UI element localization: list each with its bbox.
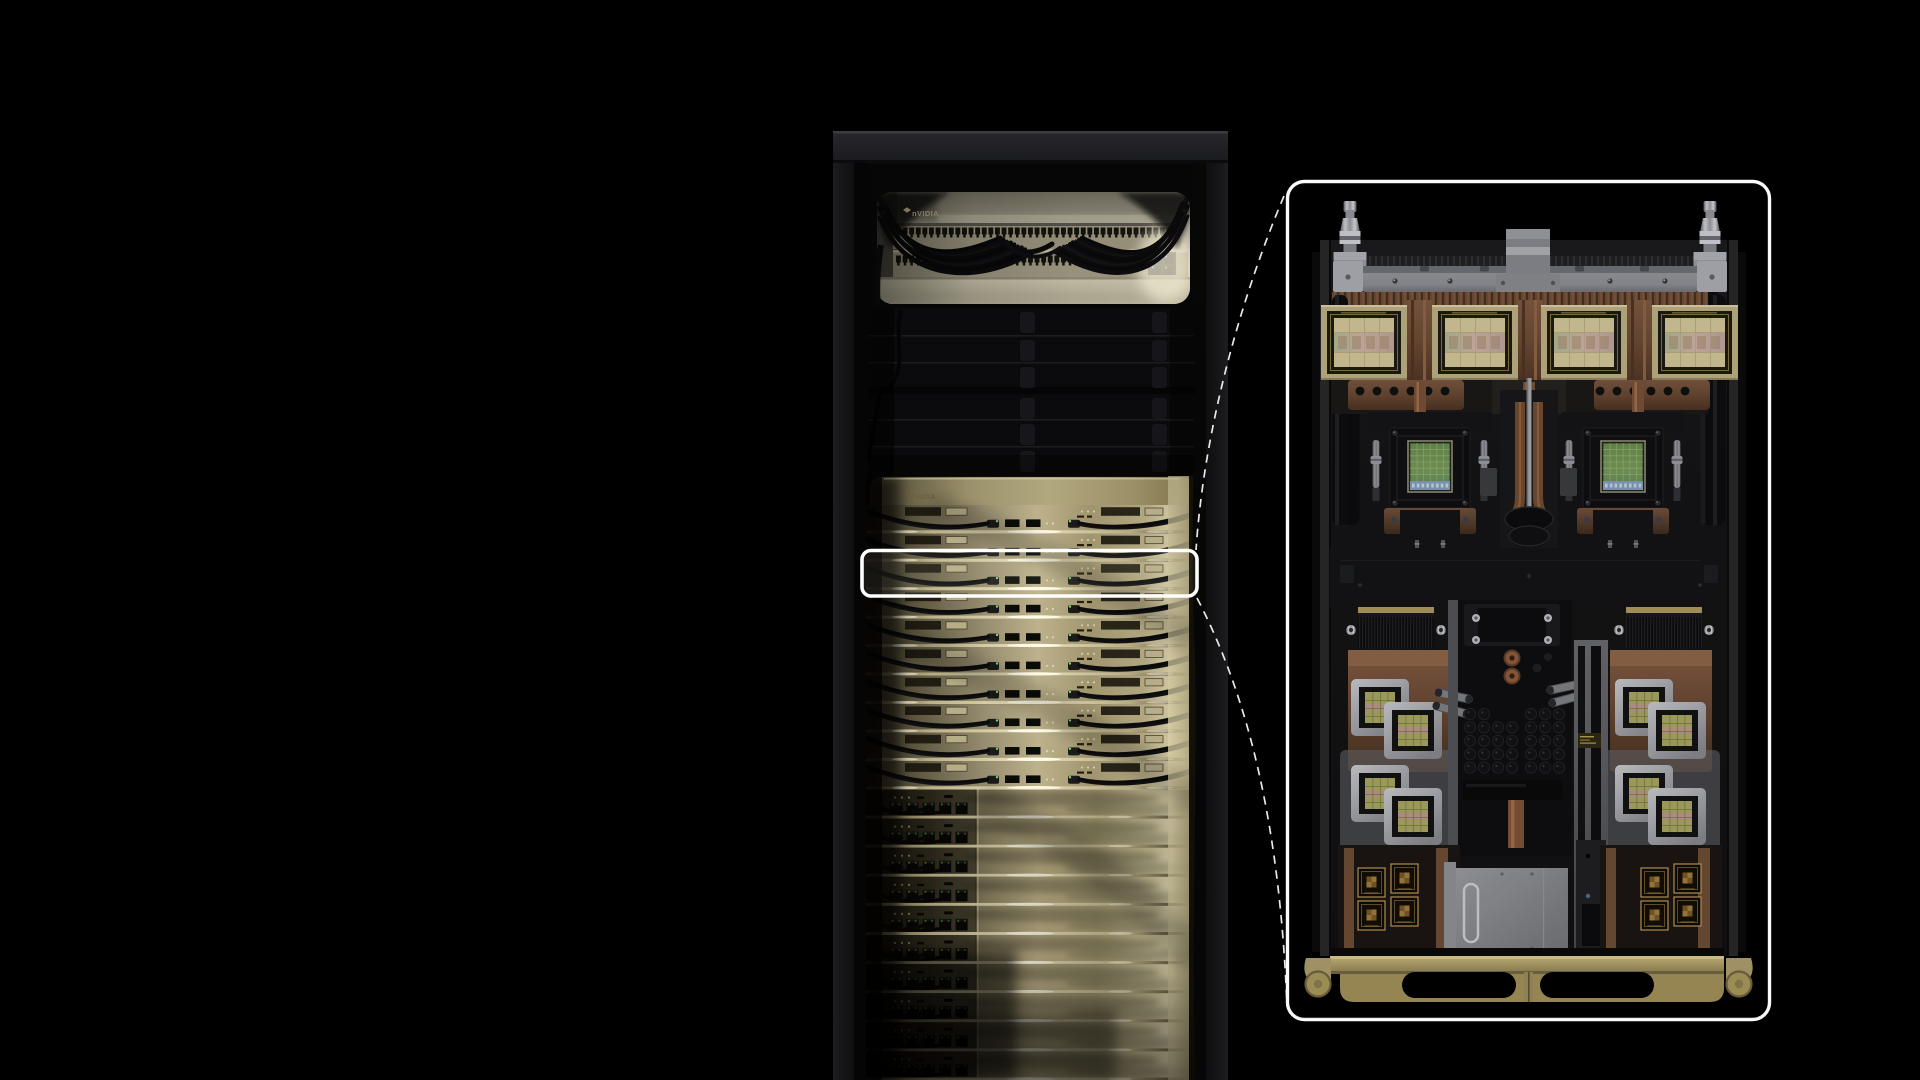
svg-text:nVIDIA: nVIDIA xyxy=(912,209,939,218)
